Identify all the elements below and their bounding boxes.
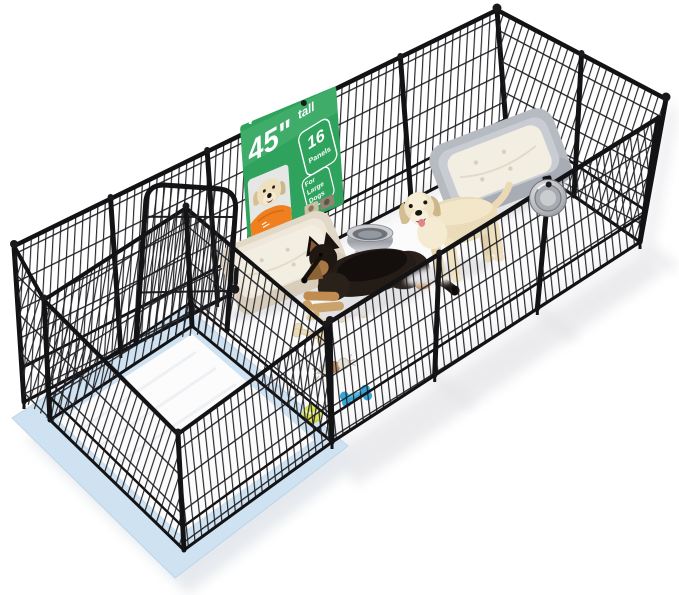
post-cap bbox=[493, 4, 502, 13]
water-surface bbox=[358, 231, 382, 239]
dog-playpen-product-photo: 45" tall 16 Panels bbox=[0, 0, 679, 595]
post-cap bbox=[175, 429, 182, 436]
post-cap bbox=[323, 321, 330, 328]
post-cap bbox=[10, 240, 18, 248]
post-cap bbox=[204, 147, 210, 153]
post-cap bbox=[662, 93, 671, 102]
post-cap bbox=[108, 194, 114, 200]
shepherd-front-leg bbox=[303, 291, 339, 301]
post-cap bbox=[183, 203, 190, 210]
post-cap bbox=[397, 53, 403, 59]
post-cap bbox=[579, 50, 585, 56]
post-cap bbox=[546, 182, 552, 188]
post-cap bbox=[436, 250, 442, 256]
scene-canvas: 45" tall 16 Panels bbox=[0, 0, 679, 595]
post-cap bbox=[41, 295, 48, 302]
fence-bowl-center bbox=[540, 190, 556, 206]
post-cap bbox=[301, 100, 307, 106]
